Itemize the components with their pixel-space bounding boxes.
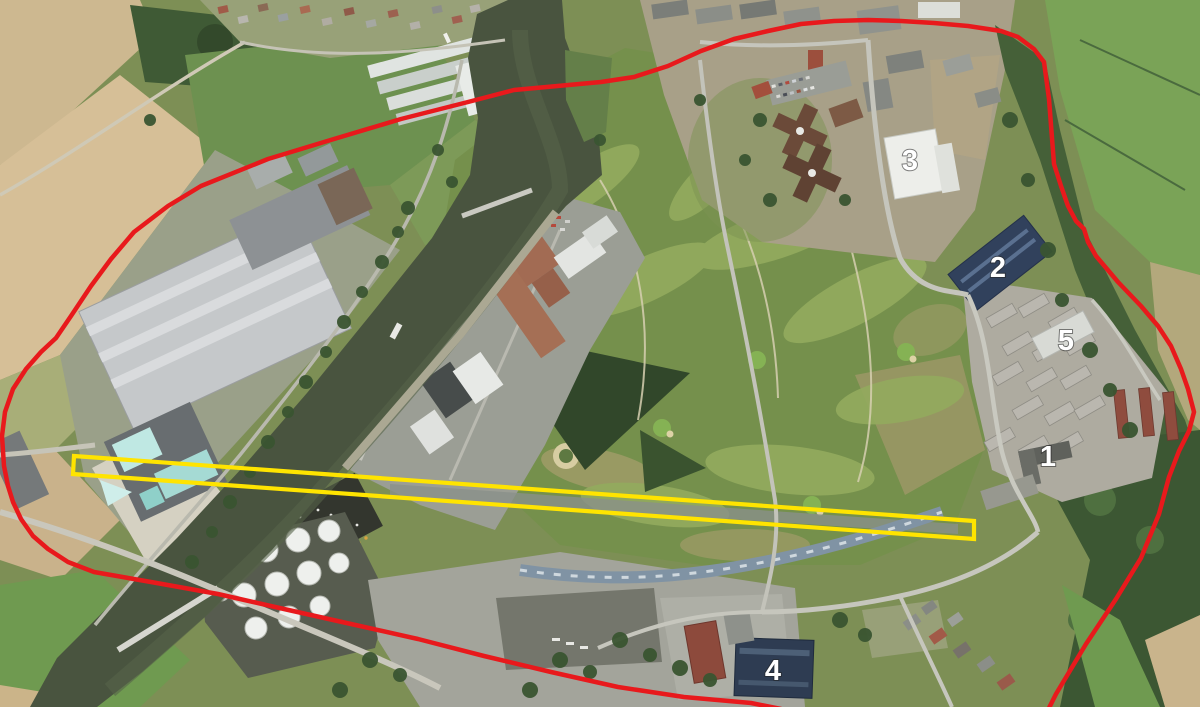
map-label-1: 1 (1040, 441, 1056, 473)
satellite-map-screenshot: 1 2 3 4 5 (0, 0, 1200, 707)
map-label-2: 2 (990, 252, 1006, 284)
map-label-5: 5 (1058, 325, 1074, 357)
map-label-3: 3 (902, 145, 918, 177)
satellite-imagery (0, 0, 1200, 707)
map-label-4: 4 (765, 655, 781, 687)
